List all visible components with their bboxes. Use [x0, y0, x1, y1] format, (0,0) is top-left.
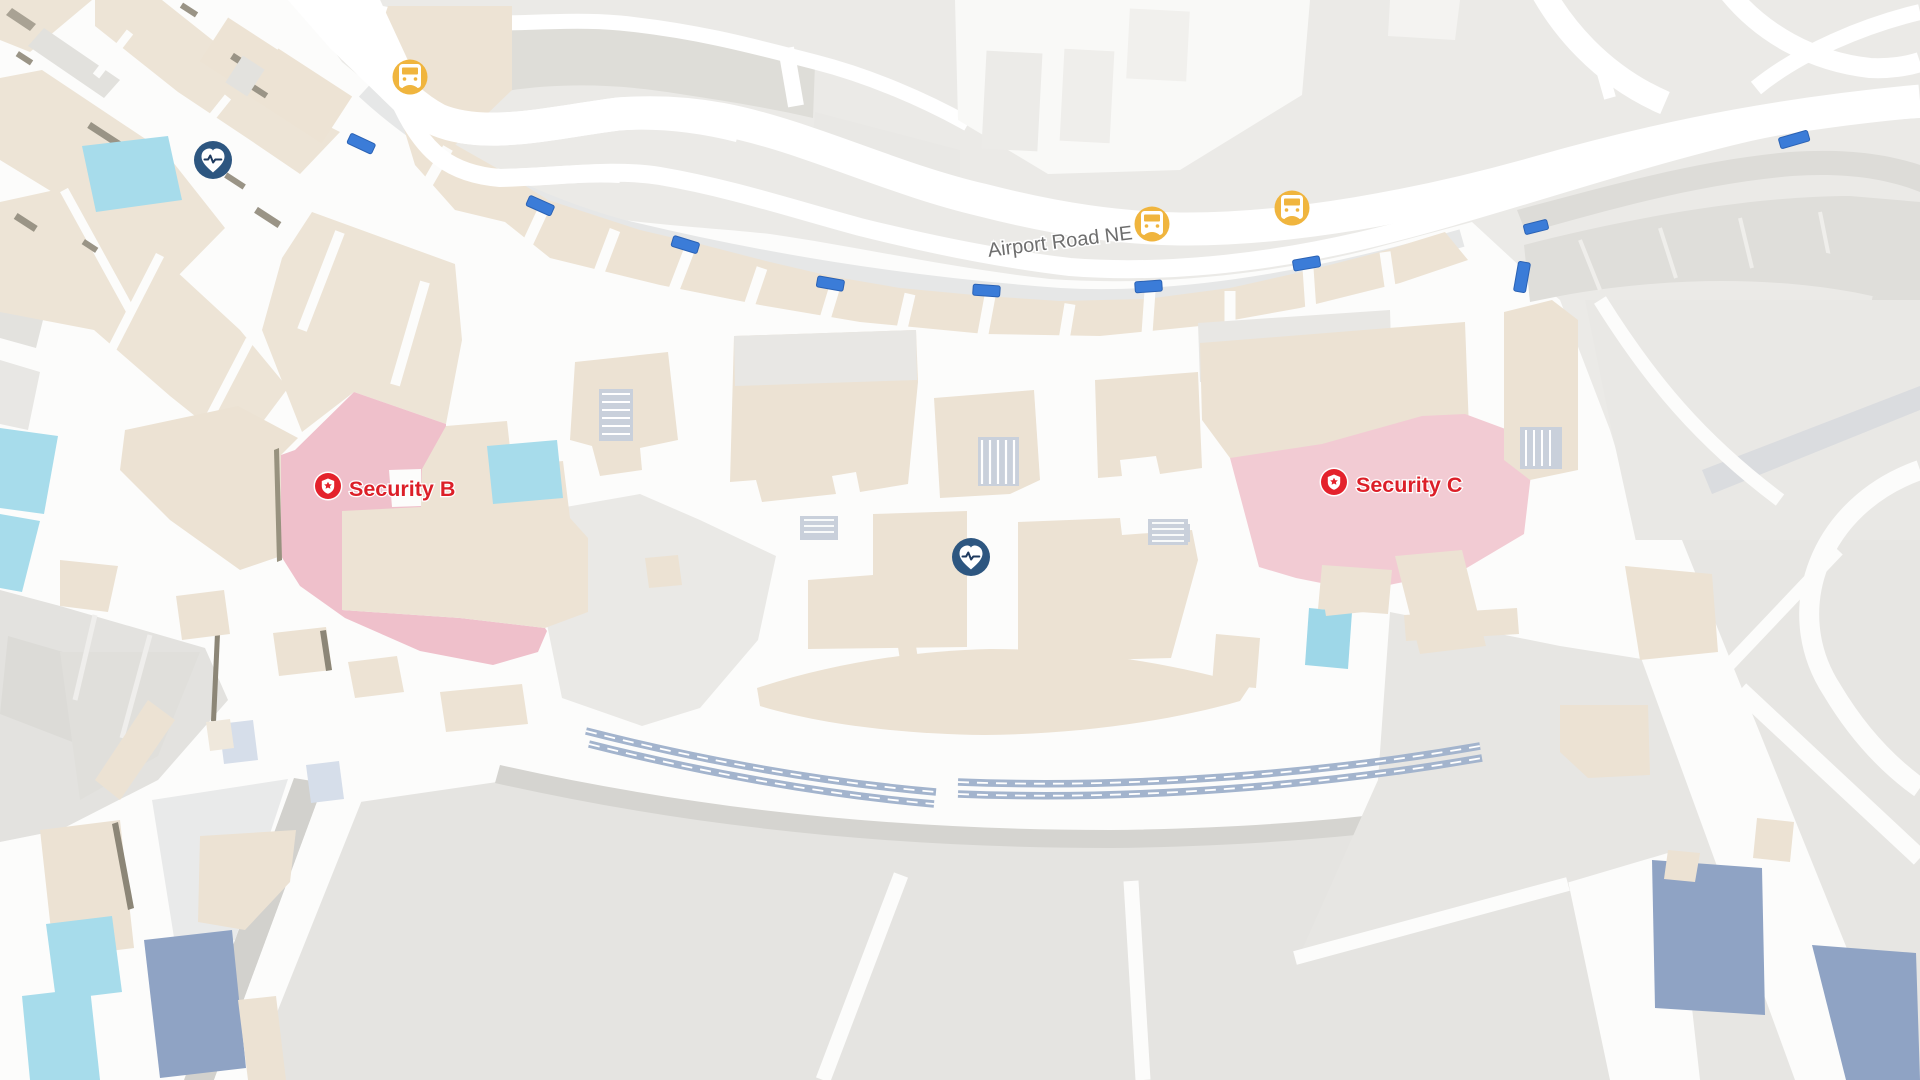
svg-text:Security B: Security B: [349, 477, 455, 501]
svg-text:Security C: Security C: [1356, 473, 1462, 497]
